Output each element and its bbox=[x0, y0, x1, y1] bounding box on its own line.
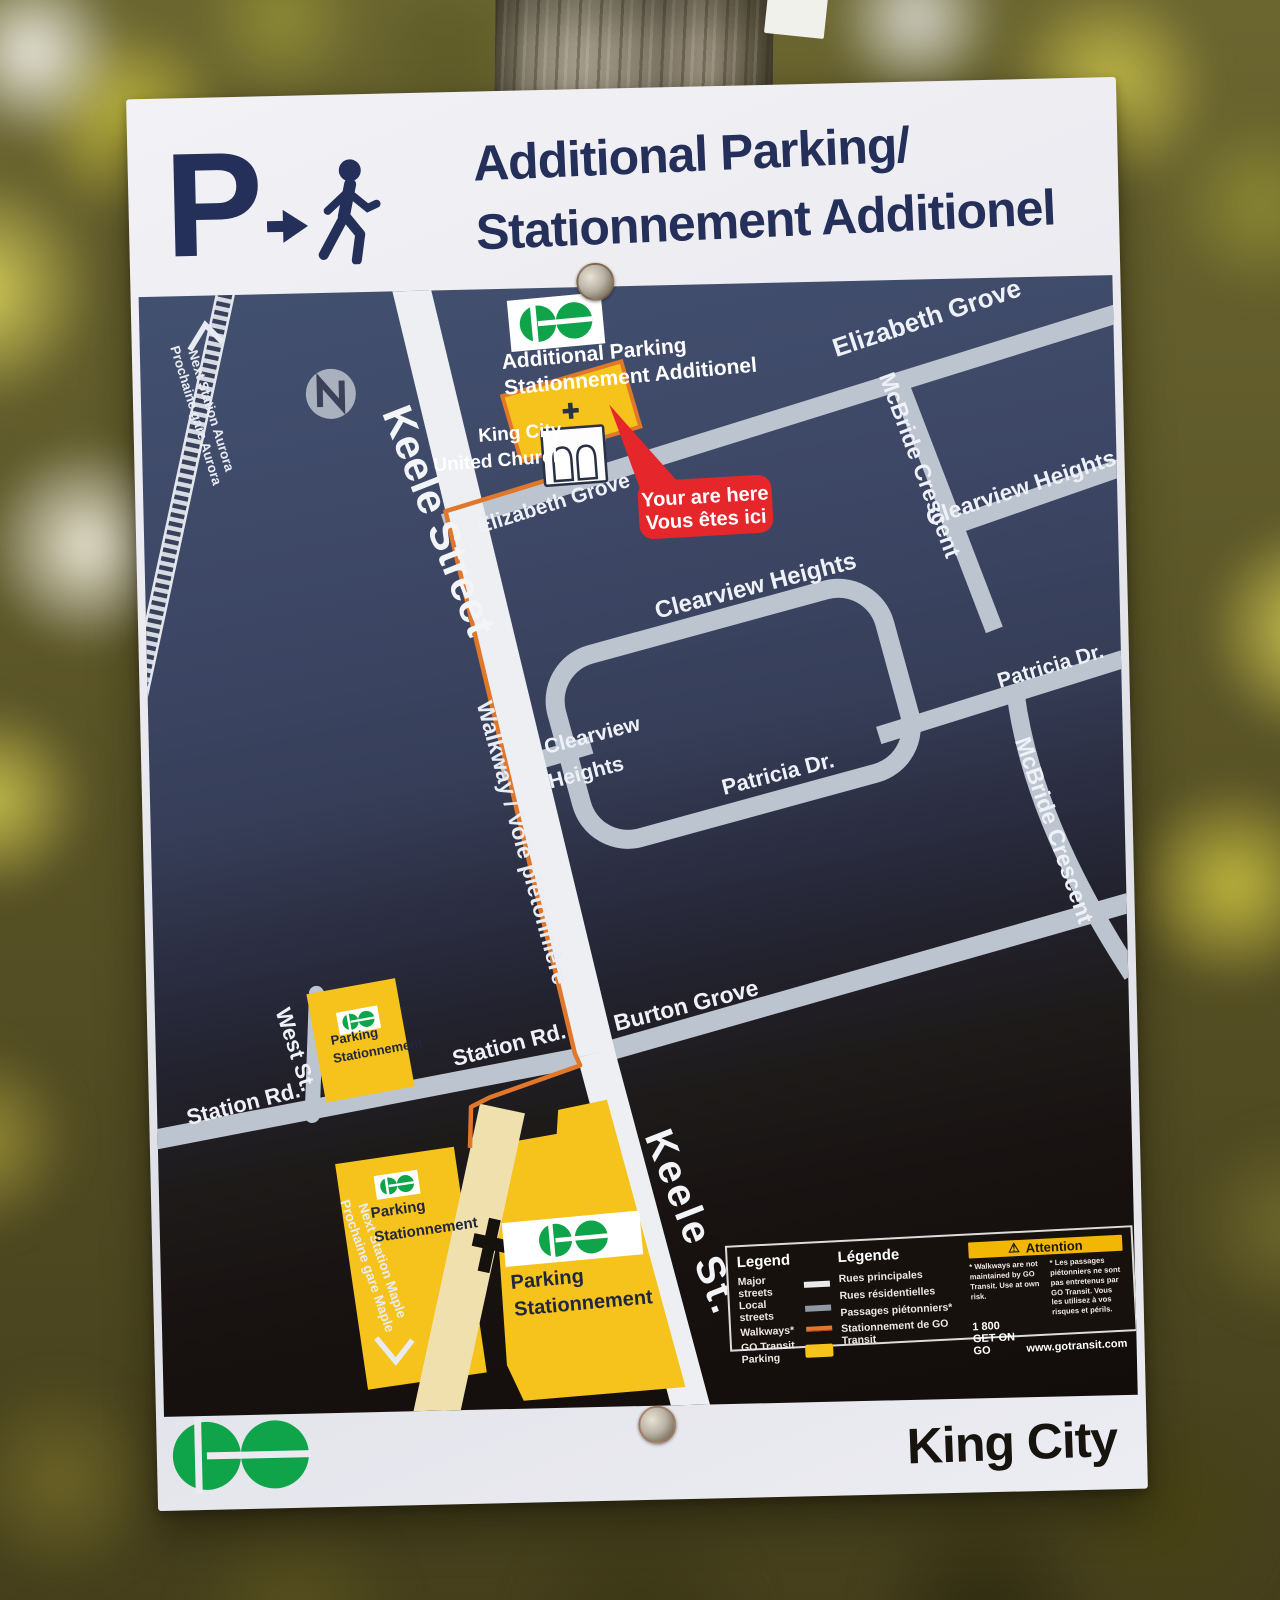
street-label-mcbride-crescent: McBride Crescent bbox=[1010, 733, 1099, 926]
parking-p-icon: P bbox=[163, 130, 261, 280]
legend-label-major-streets: Major streets bbox=[737, 1273, 801, 1300]
street-label-mcbride-crescent-top: McBride Crescent bbox=[874, 369, 966, 562]
major-street-swatch bbox=[804, 1281, 830, 1288]
paper-scrap bbox=[764, 0, 828, 39]
map-panel: Next Station Aurora Prochaine gare Auror… bbox=[139, 275, 1138, 1417]
legend-title-fr: Légende bbox=[837, 1243, 960, 1266]
go-parking-sign: P Additional Parking/ Stationnement Addi… bbox=[126, 77, 1148, 1511]
legend-attention-column: ⚠ Attention * Walkways are not maintaine… bbox=[968, 1235, 1126, 1331]
sign-title: Additional Parking/ Stationnement Additi… bbox=[472, 104, 1057, 267]
legend-label-go-parking-fr: Stationnement de GO Transit bbox=[841, 1317, 964, 1347]
legend-item-go-parking: GO Transit Parking bbox=[741, 1337, 834, 1368]
attention-note-en: * Walkways are not maintained by GO Tran… bbox=[969, 1259, 1045, 1322]
legend-label-walkways: Walkways* bbox=[740, 1324, 794, 1339]
warning-icon: ⚠ bbox=[1008, 1240, 1020, 1257]
legend-title-en: Legend bbox=[736, 1250, 829, 1272]
legend-column-fr: Légende Rues principales Rues résidentie… bbox=[837, 1243, 963, 1337]
you-are-here-callout: Your are here Vous êtes ici bbox=[637, 474, 774, 540]
go-parking-swatch bbox=[805, 1343, 834, 1357]
attention-title: Attention bbox=[1025, 1237, 1083, 1255]
legend-label-major-streets-fr: Rues principales bbox=[838, 1269, 923, 1285]
attention-note-fr: * Les passages piétonniers ne sont pas e… bbox=[1049, 1255, 1125, 1318]
legend-label-local-streets: Local streets bbox=[739, 1297, 803, 1324]
photo-scene: P Additional Parking/ Stationnement Addi… bbox=[0, 0, 1280, 1600]
go-transit-logo bbox=[164, 1401, 318, 1512]
sign-header: P Additional Parking/ Stationnement Addi… bbox=[126, 77, 1120, 297]
pedestrian-icon bbox=[310, 158, 386, 266]
legend-label-go-parking: GO Transit Parking bbox=[741, 1339, 803, 1366]
arrow-right-icon bbox=[267, 207, 310, 246]
north-compass-icon bbox=[305, 368, 356, 419]
go-phone: 1 800 GET ON GO bbox=[972, 1319, 1027, 1358]
legend-box: Legend Major streets Local streets Walkw… bbox=[725, 1225, 1138, 1352]
walkway-swatch bbox=[806, 1326, 832, 1332]
local-street-swatch bbox=[805, 1305, 831, 1312]
attention-notes: * Walkways are not maintained by GO Tran… bbox=[969, 1255, 1126, 1322]
road-clearview-loop bbox=[544, 577, 922, 850]
legend-column-en: Legend Major streets Local streets Walkw… bbox=[736, 1250, 832, 1343]
station-name: King City bbox=[905, 1410, 1117, 1476]
